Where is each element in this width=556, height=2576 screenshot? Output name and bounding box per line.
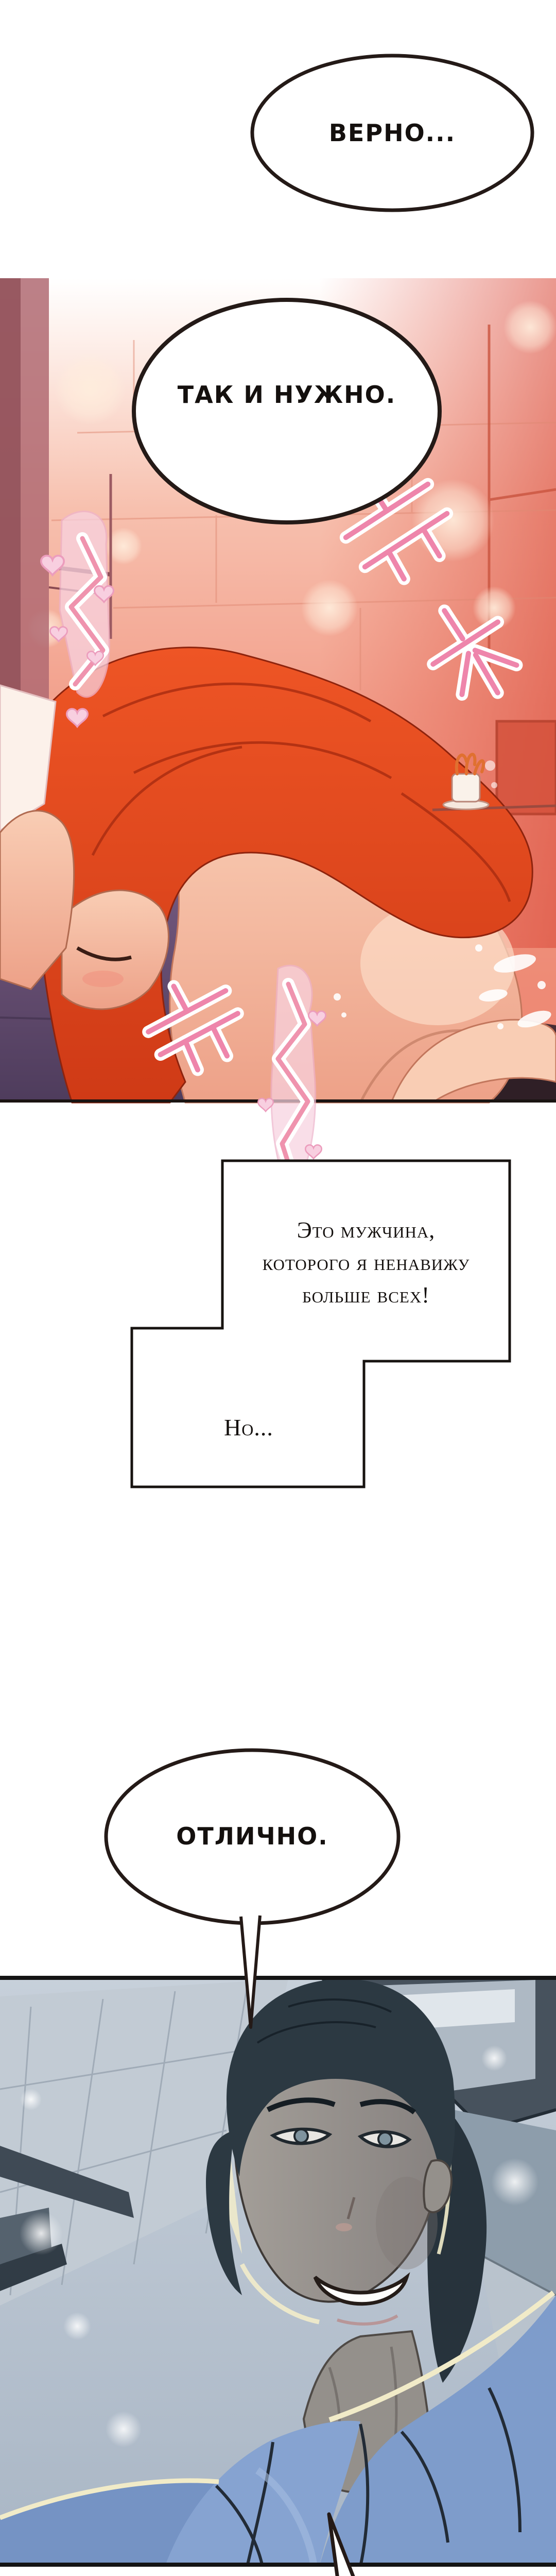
speech-bubble-otlichno: ОТЛИЧНО. — [101, 1747, 410, 2035]
bubble-tail — [241, 1916, 260, 2027]
caption-line: которого я ненавижу — [222, 1246, 510, 1279]
caption-line: больше всех! — [222, 1279, 510, 1311]
bubble-text: ВЕРНО... — [329, 119, 456, 147]
speech-bubble-tak: ТАК И НУЖНО. — [129, 295, 445, 528]
comic-panel-2 — [0, 1976, 556, 2567]
bubble-tail — [329, 2514, 363, 2576]
caption-text-block: Это мужчина, которого я ненавижу больше … — [222, 1214, 510, 1311]
caption-box-stepped — [121, 1150, 520, 1497]
bubble-text: ТАК И НУЖНО. — [178, 381, 396, 409]
speech-bubble-horosho: ТЫ ХОРОШО СПРАВЛЯЕШЬСЯ. — [196, 2503, 529, 2576]
bubble-text: ОТЛИЧНО. — [176, 1822, 328, 1850]
comic-page: ВЕРНО... ТАК И НУЖНО. Это мужчина, котор… — [0, 0, 556, 2576]
speech-bubble-verno: ВЕРНО... — [246, 50, 539, 221]
caption-no: Но... — [132, 1414, 366, 1441]
caption-line: Это мужчина, — [222, 1214, 510, 1246]
blush — [82, 971, 124, 987]
